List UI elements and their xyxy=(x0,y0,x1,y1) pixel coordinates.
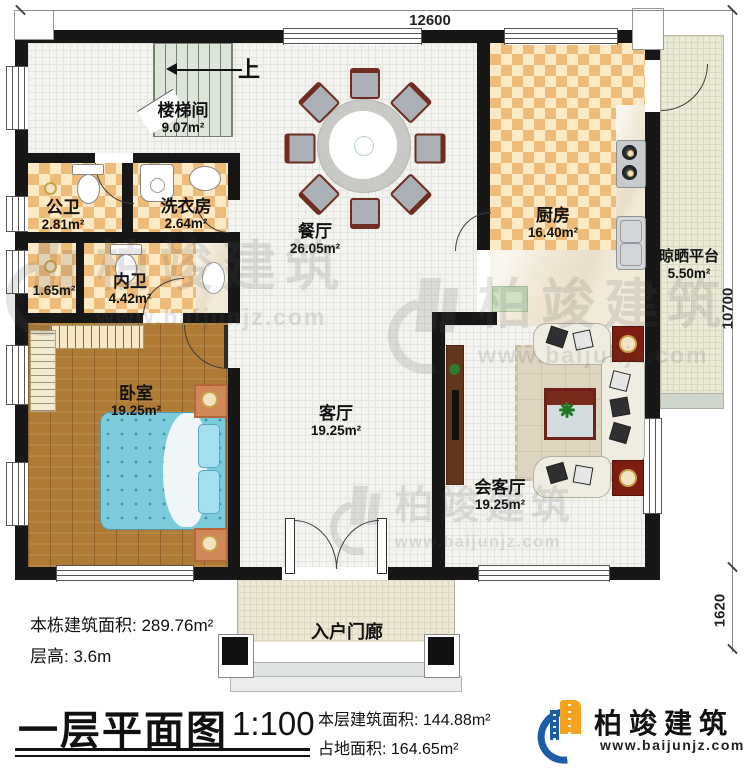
room-area: 19.25m² xyxy=(111,403,161,418)
room-label-kitchen: 厨房 16.40m² xyxy=(528,206,578,240)
window xyxy=(283,28,422,45)
dining-chair xyxy=(415,134,446,164)
logo-building-orange xyxy=(560,700,581,734)
window xyxy=(6,66,28,130)
room-label-laundry: 洗衣房 2.64m² xyxy=(161,197,212,231)
closet-shelves xyxy=(30,330,56,412)
room-name: 餐厅 xyxy=(290,222,340,241)
sofa-bottom xyxy=(533,456,611,498)
dimension-line-top xyxy=(20,10,733,11)
side-table-lamp xyxy=(619,469,637,487)
wall xyxy=(228,153,240,200)
sofa-top xyxy=(533,323,611,365)
dining-chair xyxy=(350,68,380,99)
title-underline-2 xyxy=(15,755,310,757)
room-label-dining: 餐厅 26.05m² xyxy=(290,222,340,256)
company-logo-icon xyxy=(538,698,590,756)
wardrobe xyxy=(50,325,144,349)
wall xyxy=(432,312,497,325)
wall xyxy=(15,153,95,163)
wall xyxy=(432,312,445,567)
light-pull xyxy=(44,182,57,195)
wall xyxy=(228,368,240,567)
room-label-porch: 入户门廊 xyxy=(311,622,383,642)
floor-plan-canvas: 上 xyxy=(0,0,750,768)
room-name: 厨房 xyxy=(528,206,578,225)
sink-basin xyxy=(620,243,642,266)
room-area: 2.81m² xyxy=(42,217,85,232)
room-label-closet: 1.65m² xyxy=(33,283,76,298)
room-label-stairwell: 楼梯间 9.07m² xyxy=(158,101,209,135)
private-bath-sink xyxy=(202,262,225,294)
cushion xyxy=(573,465,594,486)
room-label-living: 客厅 19.25m² xyxy=(311,404,361,438)
cushion xyxy=(572,329,593,350)
sink-basin xyxy=(620,220,642,243)
logo-building-blue xyxy=(550,710,559,740)
dimension-top-label: 12600 xyxy=(390,12,470,29)
room-area: 19.25m² xyxy=(311,423,361,438)
room-name: 楼梯间 xyxy=(158,101,209,120)
room-area: 4.42m² xyxy=(109,291,152,306)
light-pull xyxy=(44,260,57,273)
company-name: 柏竣建筑 xyxy=(594,702,734,742)
laundry-sink xyxy=(189,166,221,191)
title-underline xyxy=(15,748,310,751)
dining-chair xyxy=(285,134,316,164)
room-label-platform: 晾晒平台 5.50m² xyxy=(659,249,719,281)
room-name: 入户门廊 xyxy=(311,622,383,642)
stairs-up-label: 上 xyxy=(238,52,260,84)
wall xyxy=(183,313,240,323)
porch-step xyxy=(230,676,462,692)
window xyxy=(6,196,28,232)
exterior-unit xyxy=(14,10,54,40)
burner-center xyxy=(627,170,634,177)
floor-kitchen-top xyxy=(490,43,645,108)
washing-machine-drum xyxy=(150,178,165,193)
room-area: 1.65m² xyxy=(33,283,76,298)
pillow xyxy=(198,470,220,514)
room-name: 客厅 xyxy=(311,404,361,423)
window xyxy=(643,418,662,514)
dimension-right-label: 10700 xyxy=(720,269,737,349)
room-label-bedroom: 卧室 19.25m² xyxy=(111,384,161,418)
room-name: 内卫 xyxy=(109,272,152,291)
wall xyxy=(133,153,240,163)
sheet-scale: 1:100 xyxy=(232,705,315,743)
stairs-direction-line xyxy=(176,69,242,71)
nightstand-lamp xyxy=(201,391,218,408)
window xyxy=(478,565,610,582)
pillow xyxy=(198,424,220,468)
room-label-public-bath: 公卫 2.81m² xyxy=(42,198,85,232)
building-total-area-text: 本栋建筑面积: 289.76m² xyxy=(30,611,213,636)
room-area: 19.25m² xyxy=(475,497,526,512)
room-name: 洗衣房 xyxy=(161,197,212,216)
burner-center xyxy=(627,150,634,157)
floor-area-text: 本层建筑面积: 144.88m² xyxy=(318,706,491,730)
room-area: 26.05m² xyxy=(290,241,340,256)
lazy-susan xyxy=(354,136,374,156)
nightstand-lamp xyxy=(201,535,218,552)
window xyxy=(6,462,28,526)
window xyxy=(504,28,618,45)
platform-door-opening xyxy=(645,60,660,112)
stairs-arrow-icon xyxy=(166,63,177,75)
floor-height-text: 层高: 3.6m xyxy=(30,642,111,667)
window xyxy=(6,250,28,294)
room-label-reception: 会客厅 19.25m² xyxy=(475,478,526,512)
cushion xyxy=(610,397,631,418)
table-plant-icon xyxy=(559,402,575,418)
porch-column xyxy=(428,637,454,665)
window xyxy=(6,345,28,405)
wall xyxy=(228,232,240,313)
dining-chair xyxy=(350,198,380,229)
room-label-private-bath: 内卫 4.42m² xyxy=(109,272,152,306)
company-url: www.baijunjz.com xyxy=(600,737,745,753)
room-name: 公卫 xyxy=(42,198,85,217)
room-name: 晾晒平台 xyxy=(659,249,719,266)
room-area: 9.07m² xyxy=(158,120,209,135)
room-area: 16.40m² xyxy=(528,225,578,240)
wall xyxy=(15,232,240,243)
bedroom-door-leaf xyxy=(224,325,228,368)
side-table-lamp xyxy=(619,335,637,353)
cutting-board xyxy=(492,286,528,312)
land-area-text: 占地面积: 164.65m² xyxy=(318,735,459,759)
wall xyxy=(76,243,84,313)
room-name: 卧室 xyxy=(111,384,161,403)
room-name: 会客厅 xyxy=(475,478,526,497)
tv xyxy=(452,390,459,440)
platform-ledge xyxy=(660,393,724,409)
porch-column xyxy=(222,637,248,665)
flue-box xyxy=(632,8,664,50)
room-area: 5.50m² xyxy=(659,266,719,281)
dimension-right-bottom-label: 1620 xyxy=(712,581,729,641)
window xyxy=(56,565,194,582)
porch-step xyxy=(237,662,455,677)
wall xyxy=(15,313,143,323)
room-area: 2.64m² xyxy=(161,216,212,231)
